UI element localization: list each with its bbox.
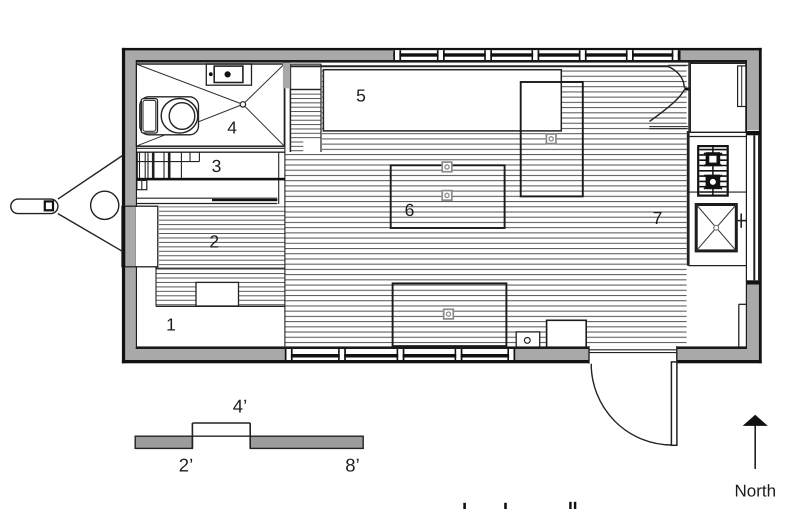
svg-text:6: 6: [405, 200, 415, 220]
svg-text:North: North: [735, 482, 777, 501]
svg-text:7: 7: [653, 208, 663, 228]
svg-text:5: 5: [356, 86, 366, 106]
svg-text:1: 1: [166, 315, 176, 335]
svg-text:2: 2: [209, 231, 219, 251]
svg-text:4: 4: [227, 118, 237, 138]
svg-text:4’: 4’: [233, 396, 247, 417]
svg-text:2’: 2’: [179, 455, 193, 476]
svg-text:3: 3: [212, 156, 222, 176]
svg-text:8’: 8’: [345, 455, 359, 476]
